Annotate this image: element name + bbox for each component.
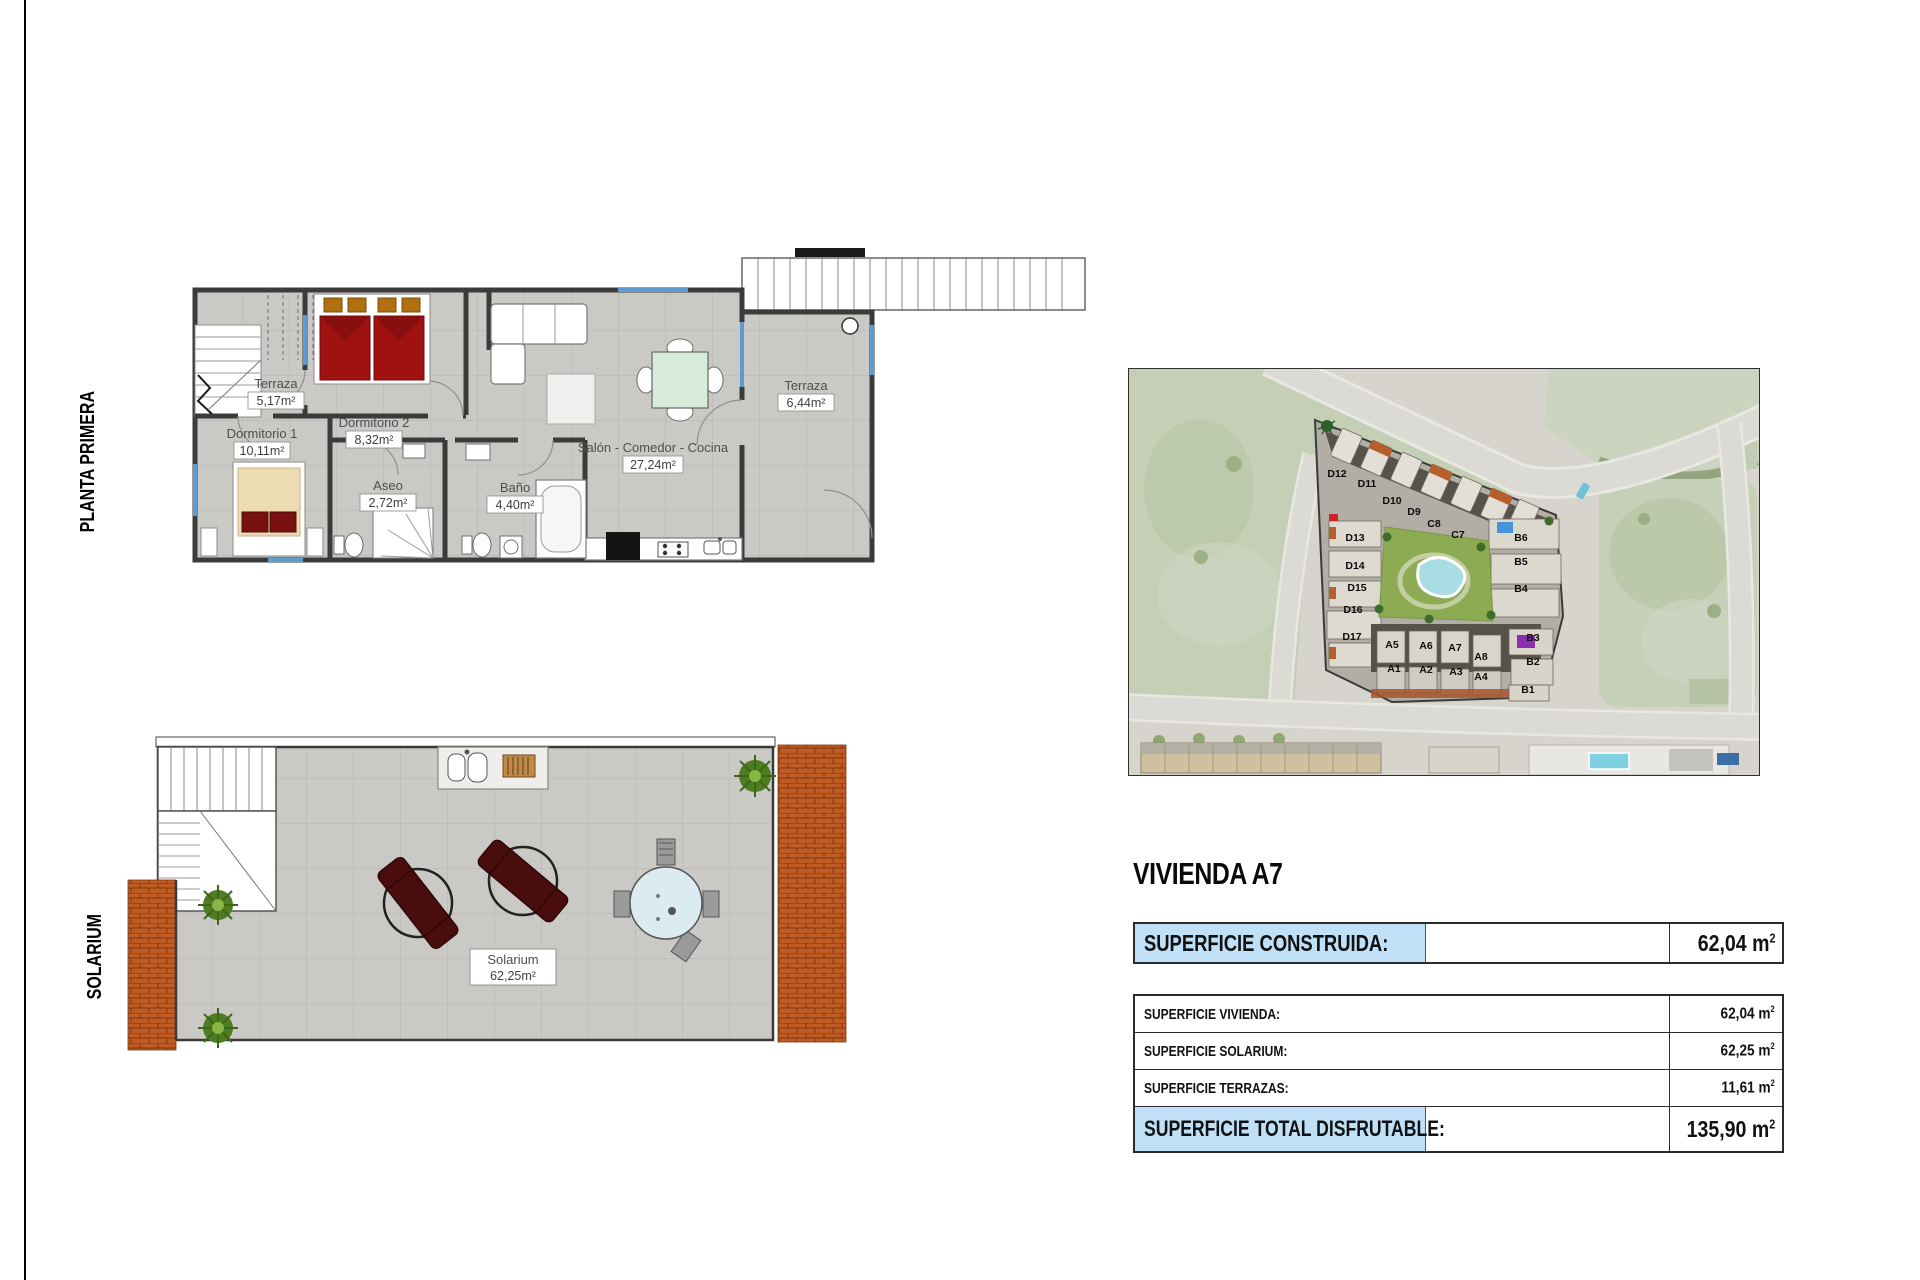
unit-title: VIVIENDA A7 [1133,856,1320,892]
map-label-a7: A7 [1448,642,1462,654]
room-area-terraza-top: 5,17m² [257,394,296,408]
summary-construida-label-cell: SUPERFICIE CONSTRUIDA: [1135,924,1426,962]
room-area-bano: 4,40m² [496,498,535,512]
terrace-column [842,318,858,334]
map-label-d16: D16 [1343,604,1362,616]
double-bed-dormitorio2 [314,294,430,384]
caption-solarium-text: SOLARIUM [84,914,107,999]
room-label-dormitorio1: Dormitorio 1 [227,426,298,441]
site-map: D12 D11 D10 D9 C8 C7 D13 D14 D15 D16 D17… [1128,368,1760,776]
map-label-c8: C8 [1427,518,1441,530]
map-label-d14: D14 [1345,560,1364,572]
summary-construida-value-cell: 62,04 m2 [1669,924,1782,962]
summary-construida-unit: m [1752,930,1769,956]
summary-solarium-label: SUPERFICIE SOLARIUM: [1144,1043,1287,1060]
map-label-a4: A4 [1474,671,1488,683]
map-label-b5: B5 [1514,556,1528,568]
map-label-b4: B4 [1514,583,1528,595]
map-label-d17: D17 [1342,631,1361,643]
summary-total-label: SUPERFICIE TOTAL DISFRUTABLE: [1144,1116,1445,1142]
parapet [156,737,775,747]
rug [547,374,595,424]
room-area-dormitorio2: 8,32m² [355,433,394,447]
room-label-dormitorio2: Dormitorio 2 [339,415,410,430]
map-label-d11: D11 [1358,478,1377,490]
summer-kitchen [438,747,548,789]
caption-solarium: SOLARIUM [84,902,106,1012]
summary-row-solarium: SUPERFICIE SOLARIUM: 62,25 m2 [1135,1033,1782,1070]
summary-construida-value: 62,04 [1697,930,1746,956]
map-label-d15: D15 [1347,582,1366,594]
summary-terrazas-value: 11,61 [1722,1080,1755,1097]
map-label-c7: C7 [1451,529,1465,541]
map-label-a1: A1 [1387,663,1401,675]
room-area-aseo: 2,72m² [369,496,408,510]
map-label-d12: D12 [1327,468,1346,480]
room-label-bano: Baño [500,480,530,495]
room-label-terraza-right: Terraza [784,378,828,393]
floor-plan-solarium: Solarium 62,25m² [118,733,863,1055]
floor-plan-planta-primera: Terraza 5,17m² Dormitorio 2 8,32m² Salón… [148,240,1098,580]
room-area-terraza-right: 6,44m² [787,396,826,410]
summary-total-value: 135,90 [1686,1116,1746,1142]
summary-construida-exp: 2 [1769,931,1775,945]
room-area-salon: 27,24m² [630,458,676,472]
map-label-b1: B1 [1521,684,1535,696]
plan-sheet-page: { "page": { "left_label_top": "PLANTA PR… [0,0,1920,1280]
caption-planta-primera: PLANTA PRIMERA [77,372,99,552]
external-staircase [742,248,1085,310]
summary-subtable: SUPERFICIE VIVIENDA: 62,04 m2 SUPERFICIE… [1133,994,1784,1153]
summary-row-construida: SUPERFICIE CONSTRUIDA: 62,04 m2 [1133,922,1784,964]
map-label-b2: B2 [1526,656,1540,668]
summary-row-total: SUPERFICIE TOTAL DISFRUTABLE: 135,90 m2 [1135,1107,1782,1151]
unit-title-text: VIVIENDA A7 [1133,856,1282,892]
map-label-a2: A2 [1419,664,1433,676]
caption-planta-primera-text: PLANTA PRIMERA [77,391,100,532]
room-label-aseo: Aseo [373,478,403,493]
map-label-b6: B6 [1514,532,1528,544]
solarium-label-group: Solarium 62,25m² [470,949,556,985]
map-label-a8: A8 [1474,651,1488,663]
room-label-salon: Salón - Comedor - Cocina [578,440,729,455]
map-label-a6: A6 [1419,640,1433,652]
summary-vivienda-value: 62,04 [1721,1006,1755,1023]
map-label-a3: A3 [1449,666,1463,678]
map-label-b3: B3 [1526,632,1540,644]
room-area-solarium: 62,25m² [490,969,536,983]
summary-vivienda-label: SUPERFICIE VIVIENDA: [1144,1006,1280,1023]
page-edge-line [24,0,26,1280]
summary-construida-spacer [1426,924,1669,962]
map-label-a5: A5 [1385,639,1399,651]
summary-row-terrazas: SUPERFICIE TERRAZAS: 11,61 m2 [1135,1070,1782,1107]
flag-marker [1329,514,1338,521]
summary-terrazas-label: SUPERFICIE TERRAZAS: [1144,1080,1289,1097]
summary-solarium-value: 62,25 [1721,1043,1755,1060]
room-label-terraza-top: Terraza [254,376,298,391]
room-area-dormitorio1: 10,11m² [240,444,285,458]
roof-tiles-left [128,880,176,1050]
summary-row-vivienda: SUPERFICIE VIVIENDA: 62,04 m2 [1135,996,1782,1033]
map-label-d10: D10 [1382,495,1401,507]
roof-tiles-right [778,745,846,1042]
summary-construida-label: SUPERFICIE CONSTRUIDA: [1144,930,1388,957]
map-label-d9: D9 [1407,506,1421,518]
room-label-solarium: Solarium [487,952,538,967]
map-label-d13: D13 [1345,532,1364,544]
